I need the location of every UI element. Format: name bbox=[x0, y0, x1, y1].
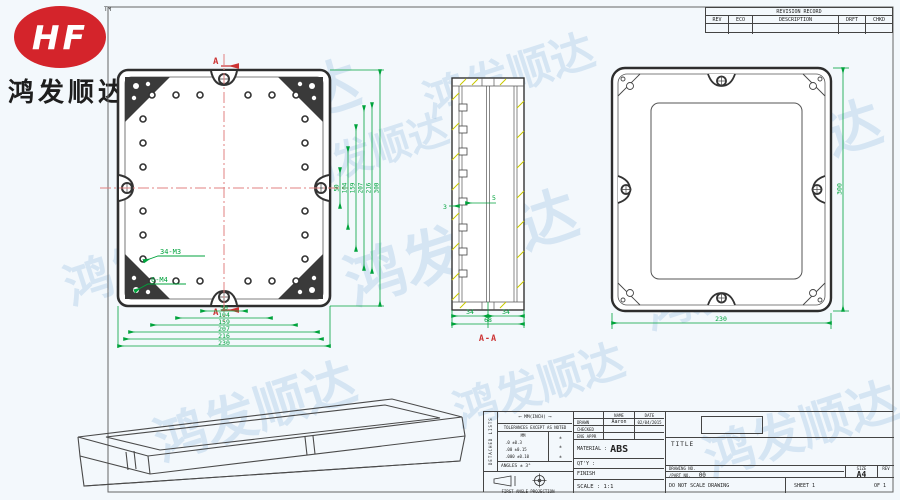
dim-rib-5: 5 bbox=[492, 194, 496, 202]
projection-label: FIRST ANGLE PROJECTION bbox=[484, 488, 572, 493]
drft-col-header: DRFT bbox=[839, 16, 866, 24]
scale-label: SCALE : 1:1 bbox=[574, 480, 664, 493]
callout-6-m4: 6-M4 bbox=[151, 276, 168, 284]
description-cell-empty bbox=[753, 24, 839, 34]
tolerance-note: TOLERANCES EXCEPT AS NOTED bbox=[498, 424, 572, 432]
drawing-sheet: 鸿发顺达 鸿发顺达 鸿发顺达 鸿发顺达 鸿发顺达 鸿发顺达 鸿发顺达 鸿发顺达 … bbox=[0, 0, 900, 500]
dim-68: 68 bbox=[484, 316, 492, 324]
material-label: MATERIAL : bbox=[577, 446, 607, 452]
vdim-104: 104 bbox=[342, 182, 349, 193]
eco-cell-empty bbox=[729, 24, 753, 34]
chkd-col-header: CHKD bbox=[866, 16, 892, 24]
sheet-of: OF 1 bbox=[874, 483, 886, 489]
part-no-label: /PART NO. bbox=[669, 473, 691, 478]
qty-label: QT'Y : bbox=[574, 459, 664, 469]
drft-cell-empty bbox=[839, 24, 866, 34]
vdim-300: 300 bbox=[374, 182, 381, 193]
drawn-label: DRAWN bbox=[574, 419, 604, 426]
units-header: MM(INCH) bbox=[524, 415, 546, 420]
rev-col-header: REV bbox=[706, 16, 729, 24]
dim-wall-3: 3 bbox=[443, 203, 447, 211]
drawn-date: 02/04/2015 bbox=[635, 419, 664, 426]
vdim-216: 216 bbox=[366, 182, 373, 193]
revision-record-title: REVISION RECORD bbox=[706, 8, 892, 16]
section-marker-a-top: A bbox=[213, 57, 219, 67]
checked-label: CHECKED bbox=[574, 426, 604, 433]
target-projection-icon bbox=[532, 473, 547, 488]
isometric-view bbox=[78, 399, 465, 486]
title-label: TITLE bbox=[671, 441, 694, 448]
vdim-50: 50 bbox=[334, 184, 341, 192]
tol-row-1-mm: .0 ±0.3 bbox=[502, 439, 548, 446]
stamp-box bbox=[701, 416, 763, 434]
section-label: A-A bbox=[479, 334, 497, 344]
approval-column: NAME DATE DRAWN Aaron 02/04/2015 CHECKED… bbox=[574, 412, 666, 493]
drawn-name: Aaron bbox=[604, 419, 635, 426]
back-view: 230 300 bbox=[612, 68, 849, 329]
tol-unit-header: MM bbox=[498, 432, 548, 439]
checked-date-empty bbox=[635, 426, 664, 433]
tol-row-3-inch: ± bbox=[548, 451, 572, 461]
dim-34-right: 34 bbox=[502, 308, 510, 316]
title-block: DETACHED LISTS ⟵ MM(INCH) ⟶ TOLERANCES E… bbox=[483, 411, 893, 492]
vdim-159: 159 bbox=[350, 182, 357, 193]
projection-box: FIRST ANGLE PROJECTION bbox=[484, 471, 574, 493]
do-not-scale-note: DO NOT SCALE DRAWING bbox=[666, 478, 786, 493]
eng-appr-date-empty bbox=[635, 433, 664, 440]
eco-col-header: ECO bbox=[729, 16, 753, 24]
dim-34-left: 34 bbox=[466, 308, 474, 316]
dim-back-300: 300 bbox=[836, 183, 844, 195]
tol-row-2-mm: .00 ±0.15 bbox=[502, 446, 548, 453]
size-value: A4 bbox=[846, 470, 877, 478]
checked-name-empty bbox=[604, 426, 635, 433]
date-header: DATE bbox=[635, 412, 664, 419]
name-header: NAME bbox=[604, 412, 635, 419]
cone-projection-icon bbox=[492, 475, 520, 487]
material-value: ABS bbox=[610, 444, 628, 455]
section-view: 5 3 34 34 68 A-A bbox=[443, 78, 524, 344]
dim-230: 230 bbox=[218, 339, 230, 347]
eng-appr-label: ENG APPR bbox=[574, 433, 604, 440]
revision-record-table: REVISION RECORD REV ECO DESCRIPTION DRFT… bbox=[705, 7, 893, 33]
units-arrow-right: ⟶ bbox=[546, 415, 551, 420]
finish-label: FINISH bbox=[574, 469, 664, 480]
tolerance-box: ⟵ MM(INCH) ⟶ TOLERANCES EXCEPT AS NOTED … bbox=[498, 412, 574, 471]
vdim-207: 207 bbox=[358, 182, 365, 193]
title-column: TITLE DRAWING NO. /PART NO. 00 SIZE A4 R… bbox=[666, 412, 894, 493]
rev-label: REV bbox=[878, 466, 894, 478]
eng-appr-name-empty bbox=[604, 433, 635, 440]
blank-header bbox=[574, 412, 604, 419]
sheet-number: SHEET 1 bbox=[794, 483, 815, 489]
description-col-header: DESCRIPTION bbox=[753, 16, 839, 24]
angles-tolerance: ANGLES ± 3° bbox=[498, 461, 572, 471]
front-view: A A 34-M3 6-M4 50 104 bbox=[100, 54, 384, 348]
tol-row-2-inch: ± bbox=[548, 442, 572, 451]
tol-row-3-mm: .000 ±0.10 bbox=[502, 453, 548, 460]
dim-back-230: 230 bbox=[715, 315, 727, 323]
side-note-strip: DETACHED LISTS bbox=[484, 412, 498, 471]
side-note-text: DETACHED LISTS bbox=[484, 412, 497, 471]
callout-34-m3: 34-M3 bbox=[160, 248, 181, 256]
tol-row-1-inch: ± bbox=[548, 432, 572, 442]
rev-cell-empty bbox=[706, 24, 729, 34]
